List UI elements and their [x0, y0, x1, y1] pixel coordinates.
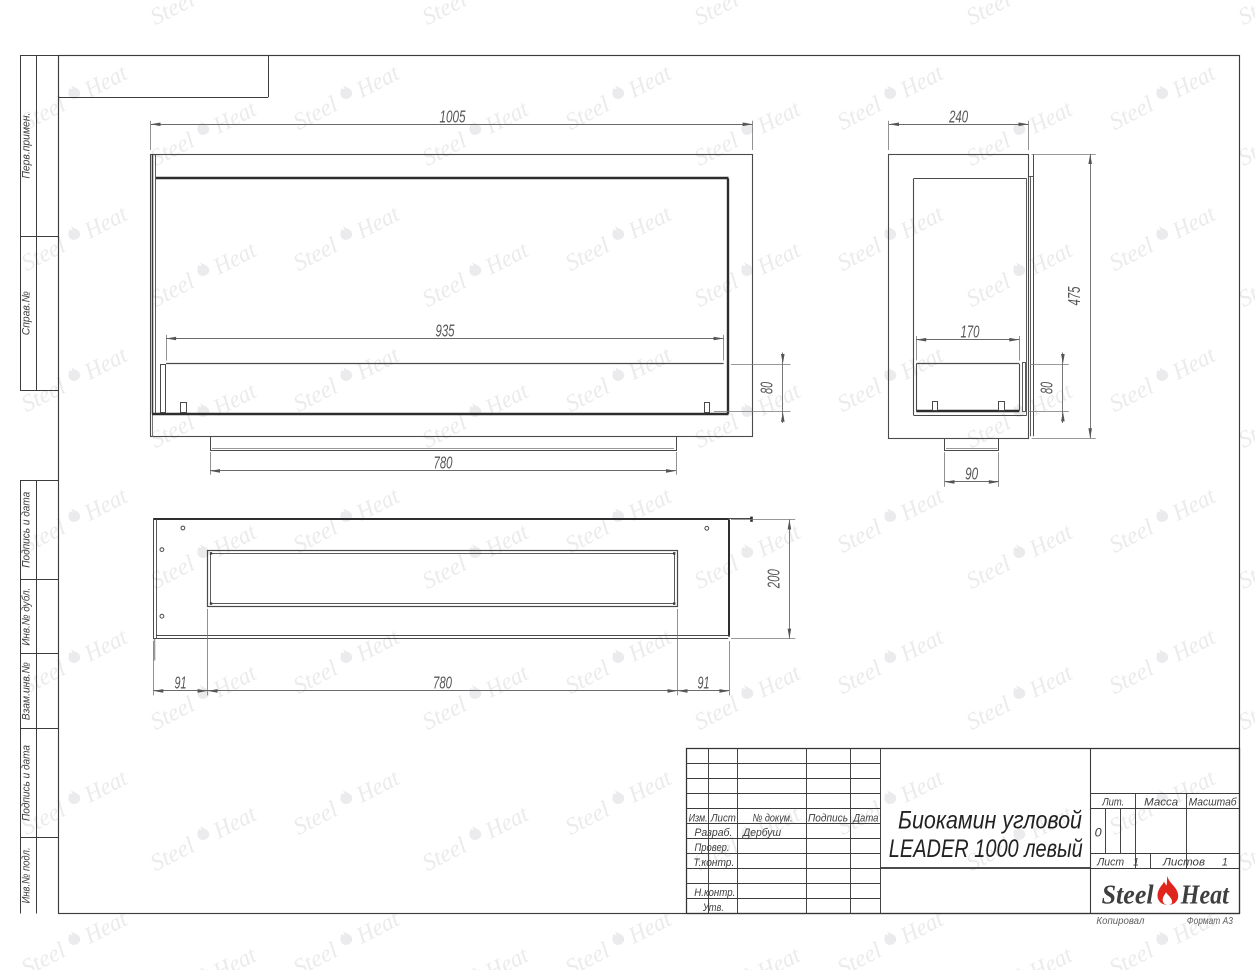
svg-text:Листов: Листов [1162, 857, 1205, 869]
svg-text:780: 780 [433, 673, 452, 693]
svg-text:Инв.№ дубл.: Инв.№ дубл. [21, 588, 33, 646]
svg-text:Формат А3: Формат А3 [1187, 916, 1233, 927]
svg-text:Биокамин угловой: Биокамин угловой [898, 807, 1082, 835]
svg-text:Масса: Масса [1144, 797, 1178, 809]
svg-text:240: 240 [948, 106, 968, 126]
svg-text:№ докум.: № докум. [753, 813, 793, 825]
svg-text:Дербуш: Дербуш [741, 827, 781, 839]
svg-text:Перв.примен.: Перв.примен. [21, 113, 33, 179]
svg-text:Копировал: Копировал [1096, 916, 1144, 927]
svg-text:LEADER 1000 левый: LEADER 1000 левый [889, 835, 1083, 863]
svg-text:91: 91 [698, 673, 710, 693]
svg-text:1005: 1005 [440, 106, 466, 126]
svg-text:Дата: Дата [852, 813, 879, 825]
svg-text:780: 780 [434, 452, 453, 472]
svg-text:Лит.: Лит. [1101, 797, 1124, 809]
svg-text:Инв.№ подл.: Инв.№ подл. [21, 847, 33, 903]
svg-text:Утв.: Утв. [702, 902, 724, 914]
svg-text:Т.контр.: Т.контр. [693, 857, 734, 869]
svg-text:1: 1 [1222, 857, 1228, 869]
svg-text:Изм.: Изм. [689, 813, 708, 825]
svg-text:Разраб.: Разраб. [694, 827, 732, 839]
svg-text:Подпись и дата: Подпись и дата [21, 745, 33, 821]
svg-text:475: 475 [1064, 286, 1084, 305]
svg-text:935: 935 [436, 320, 455, 340]
svg-text:200: 200 [764, 569, 784, 589]
svg-text:Heat: Heat [1180, 880, 1230, 910]
svg-text:Провер.: Провер. [695, 842, 730, 854]
svg-text:1: 1 [1133, 857, 1139, 869]
svg-text:Подпись: Подпись [808, 813, 848, 825]
svg-text:Лист: Лист [710, 813, 736, 825]
svg-text:Справ.№: Справ.№ [21, 291, 33, 335]
svg-text:0: 0 [1095, 826, 1102, 840]
svg-text:Н.контр.: Н.контр. [694, 887, 735, 899]
svg-text:170: 170 [961, 322, 980, 342]
svg-text:91: 91 [175, 673, 187, 693]
svg-text:Steel: Steel [1102, 880, 1154, 910]
svg-text:Взам.инв.№: Взам.инв.№ [21, 662, 33, 720]
svg-text:Лист: Лист [1096, 857, 1124, 869]
svg-text:90: 90 [965, 463, 978, 483]
svg-text:Подпись и дата: Подпись и дата [21, 492, 33, 568]
svg-text:80: 80 [1037, 382, 1057, 394]
svg-text:80: 80 [756, 382, 776, 394]
svg-text:Масштаб: Масштаб [1189, 797, 1238, 809]
